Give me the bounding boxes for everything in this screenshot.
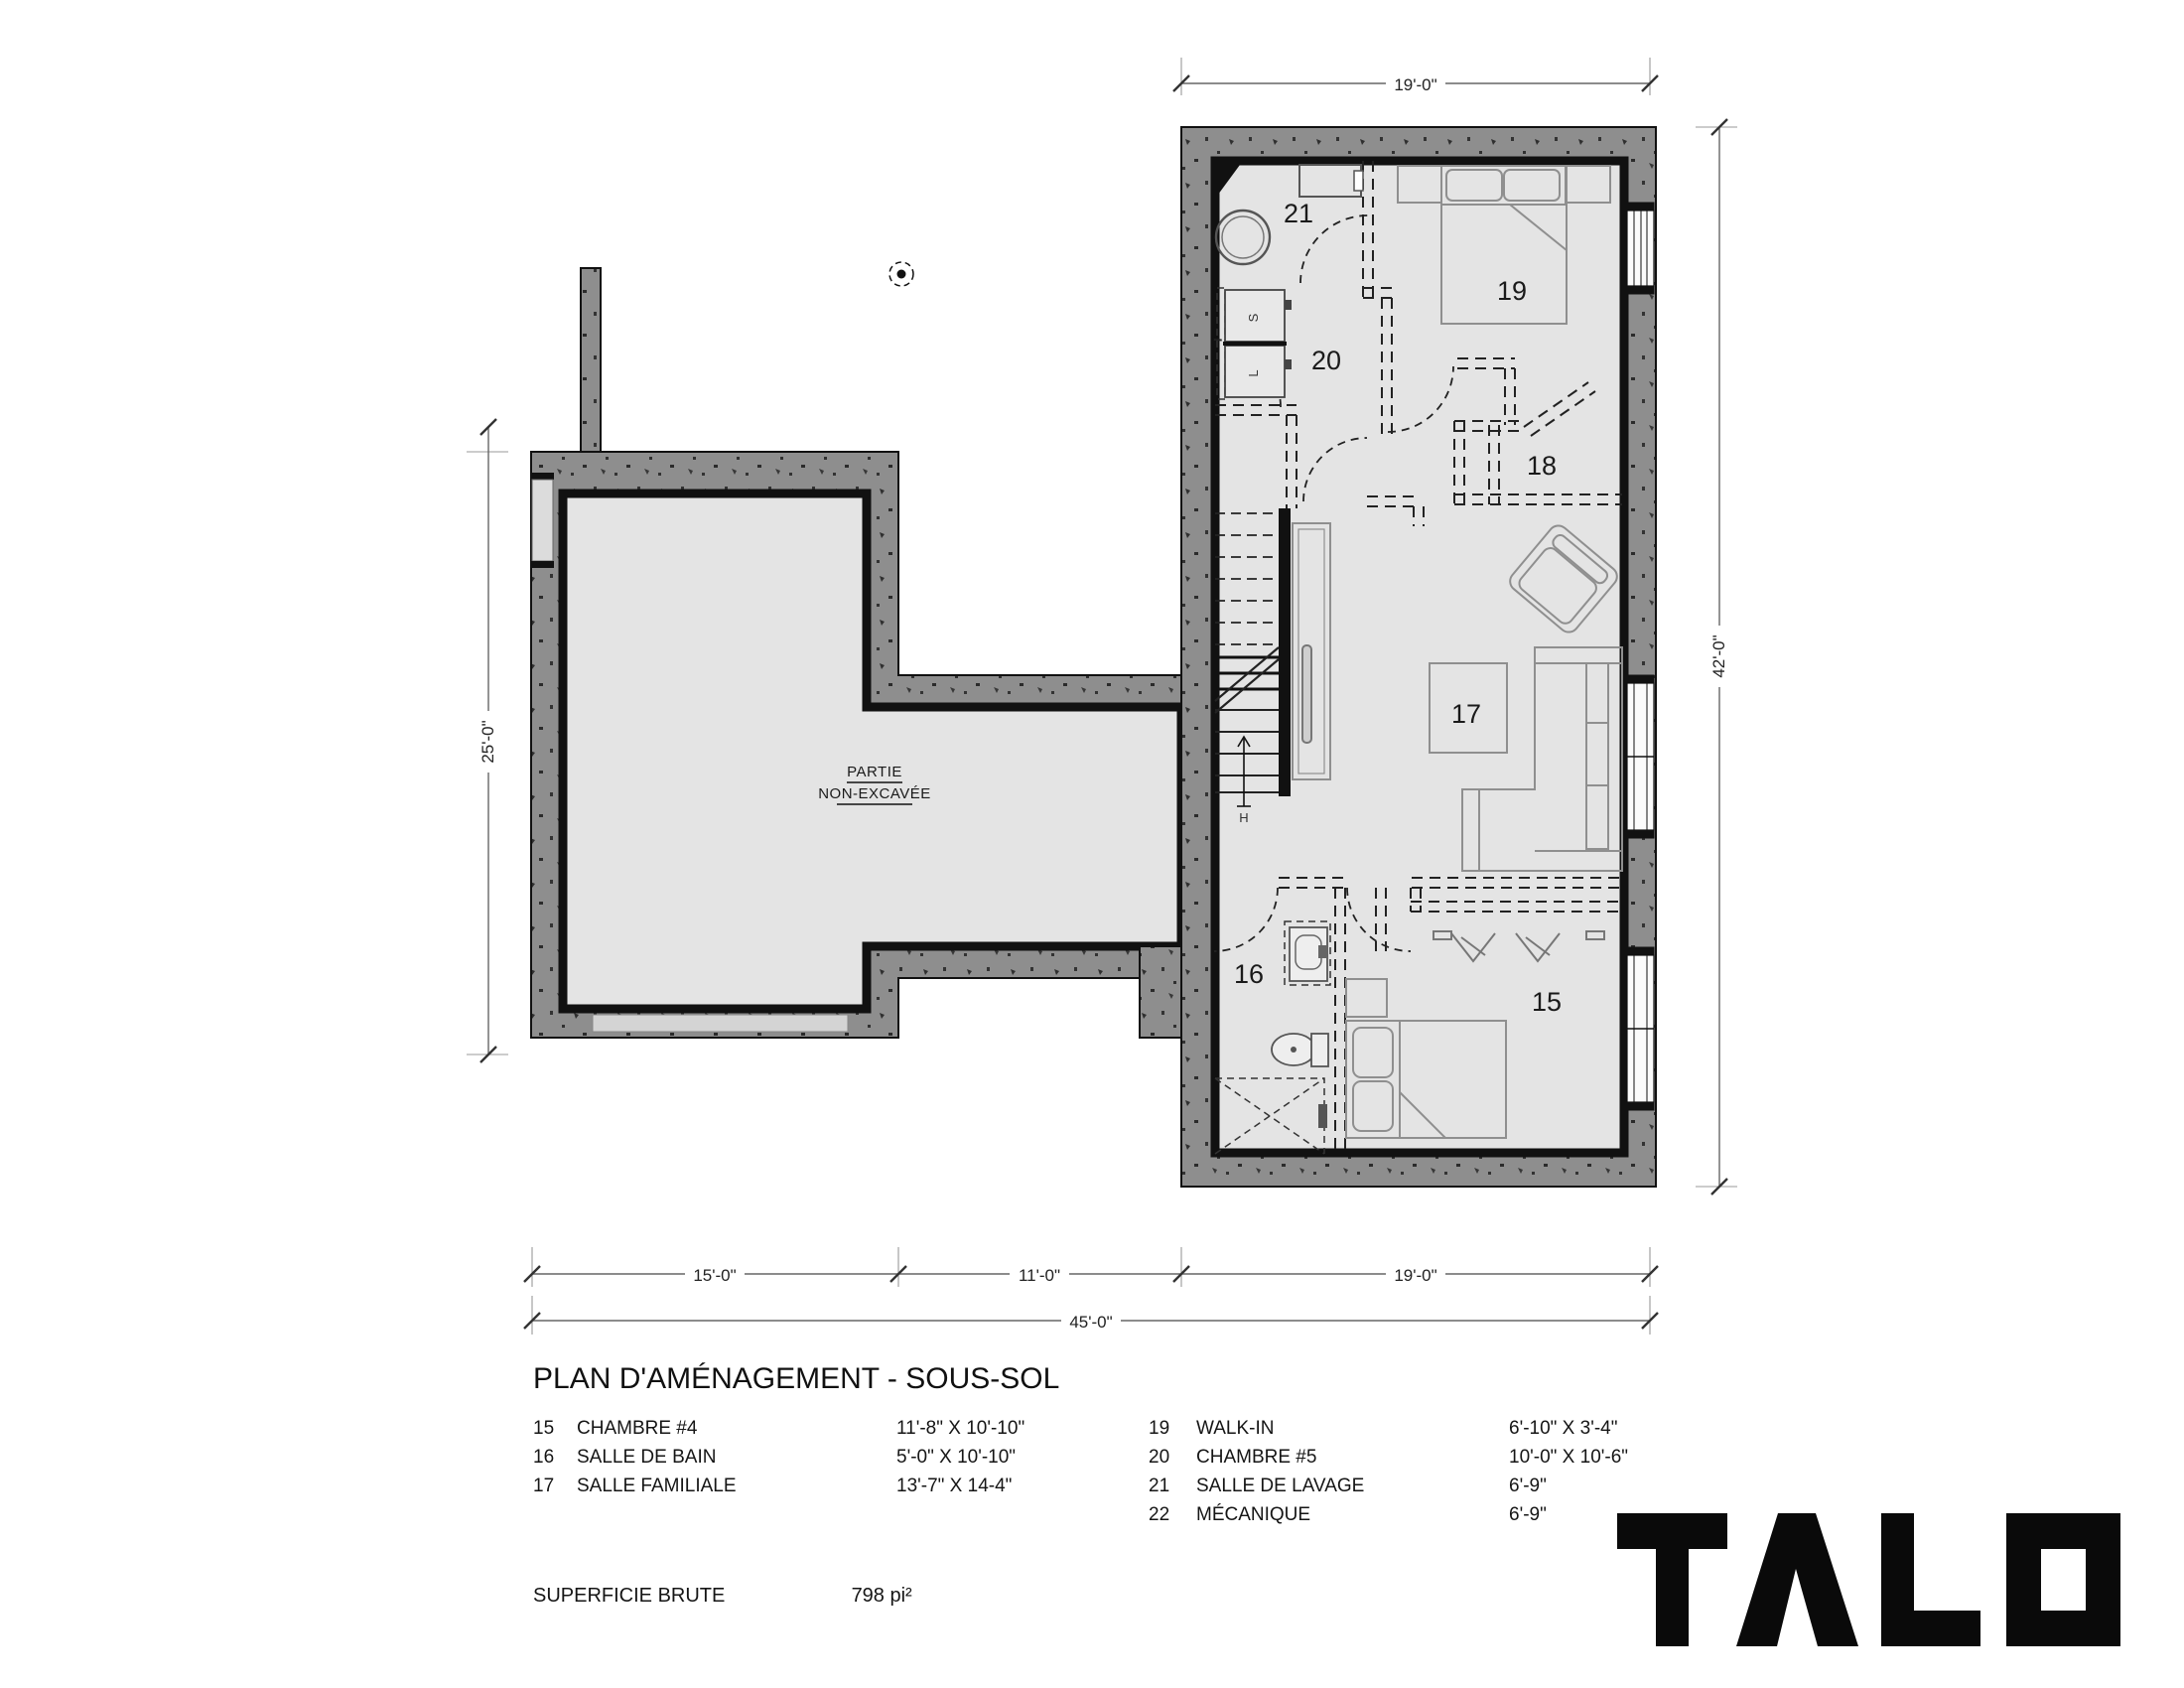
legend-num: 15 <box>533 1418 577 1440</box>
legend-left-column: 15 CHAMBRE #4 11'-8" X 10'-10" 16 SALLE … <box>533 1418 1024 1497</box>
legend-name: CHAMBRE #4 <box>577 1418 896 1440</box>
non-excavated-label-1: PARTIE <box>847 764 902 780</box>
legend-right-column: 19 WALK-IN 6'-10" X 3'-4" 20 CHAMBRE #5 … <box>1149 1418 1628 1526</box>
junction-block <box>1140 946 1183 1038</box>
legend-dims: 11'-8" X 10'-10" <box>896 1418 1024 1440</box>
room-label-18: 18 <box>1527 451 1557 481</box>
legend-name: SALLE DE BAIN <box>577 1447 896 1469</box>
dimension-bottom-segments: 15'-0" 11'-0" 19'-0" <box>524 1247 1658 1287</box>
legend-dims: 6'-10" X 3'-4" <box>1509 1418 1628 1440</box>
toilet <box>1272 1034 1328 1066</box>
room-label-16: 16 <box>1234 959 1264 989</box>
non-excavated-label-2: NON-EXCAVÉE <box>818 785 931 802</box>
dryer-label: L <box>1246 369 1261 376</box>
legend-dims: 5'-0" X 10'-10" <box>896 1447 1024 1469</box>
stair-railing <box>1279 508 1291 796</box>
gross-area-label: SUPERFICIE BRUTE <box>533 1585 846 1608</box>
room-label-17: 17 <box>1451 699 1481 729</box>
room-label-19: 19 <box>1497 276 1527 306</box>
left-wall-window <box>532 480 553 561</box>
vanity-sink <box>1290 927 1327 981</box>
legend-num: 17 <box>533 1476 577 1497</box>
logo-letter-l <box>1881 1513 1980 1646</box>
legend-name: SALLE FAMILIALE <box>577 1476 896 1497</box>
logo-letter-o <box>2006 1513 2120 1646</box>
logo-letter-t <box>1617 1513 1727 1646</box>
legend-name: WALK-IN <box>1196 1418 1509 1440</box>
room-label-15: 15 <box>1532 987 1562 1017</box>
dimension-right: 42'-0" <box>1696 119 1737 1195</box>
laundry-counter <box>1299 165 1361 197</box>
window-sill <box>530 561 554 568</box>
legend-num: 20 <box>1149 1447 1196 1469</box>
gross-area-value: 798 pi² <box>852 1585 912 1607</box>
dimension-left: 25'-0" <box>467 419 508 1062</box>
page-title: PLAN D'AMÉNAGEMENT - SOUS-SOL <box>533 1362 1059 1396</box>
wall-stub <box>581 268 601 457</box>
legend-num: 16 <box>533 1447 577 1469</box>
svg-text:42'-0": 42'-0" <box>1709 634 1728 677</box>
room-label-21: 21 <box>1284 199 1313 228</box>
left-building <box>530 268 1183 1038</box>
legend-dims: 13'-7" X 14-4" <box>896 1476 1024 1497</box>
washer-label: S <box>1246 313 1261 322</box>
floorplan-page: H S L <box>0 0 2184 1688</box>
logo-letter-a <box>1736 1513 1858 1646</box>
legend-dims: 6'-9" <box>1509 1504 1628 1526</box>
footing-strip <box>593 1015 848 1032</box>
drain-symbol <box>889 262 913 286</box>
legend-dims: 6'-9" <box>1509 1476 1628 1497</box>
svg-text:25'-0": 25'-0" <box>478 720 497 763</box>
dimension-bottom-total: 45'-0" <box>524 1296 1658 1335</box>
legend-name: MÉCANIQUE <box>1196 1504 1509 1526</box>
room-label-20: 20 <box>1311 346 1341 375</box>
tv <box>1302 645 1311 743</box>
legend-num: 22 <box>1149 1504 1196 1526</box>
legend-name: SALLE DE LAVAGE <box>1196 1476 1509 1497</box>
legend-num: 19 <box>1149 1418 1196 1440</box>
svg-text:19'-0": 19'-0" <box>1394 1266 1436 1285</box>
legend-num: 21 <box>1149 1476 1196 1497</box>
talo-logo <box>1617 1513 2120 1646</box>
floor-plan-drawing: H S L <box>0 0 2184 1688</box>
stair-mark: H <box>1239 810 1248 825</box>
legend-dims: 10'-0" X 10'-6" <box>1509 1447 1628 1469</box>
dimension-top: 19'-0" <box>1173 58 1658 95</box>
svg-text:45'-0": 45'-0" <box>1069 1313 1112 1332</box>
svg-text:11'-0": 11'-0" <box>1019 1266 1060 1285</box>
svg-text:19'-0": 19'-0" <box>1394 75 1436 94</box>
legend-name: CHAMBRE #5 <box>1196 1447 1509 1469</box>
gross-area: SUPERFICIE BRUTE 798 pi² <box>533 1585 912 1608</box>
window-sill <box>530 473 554 480</box>
washer-dryer-stack: S L <box>1223 290 1292 397</box>
svg-text:15'-0": 15'-0" <box>693 1266 736 1285</box>
